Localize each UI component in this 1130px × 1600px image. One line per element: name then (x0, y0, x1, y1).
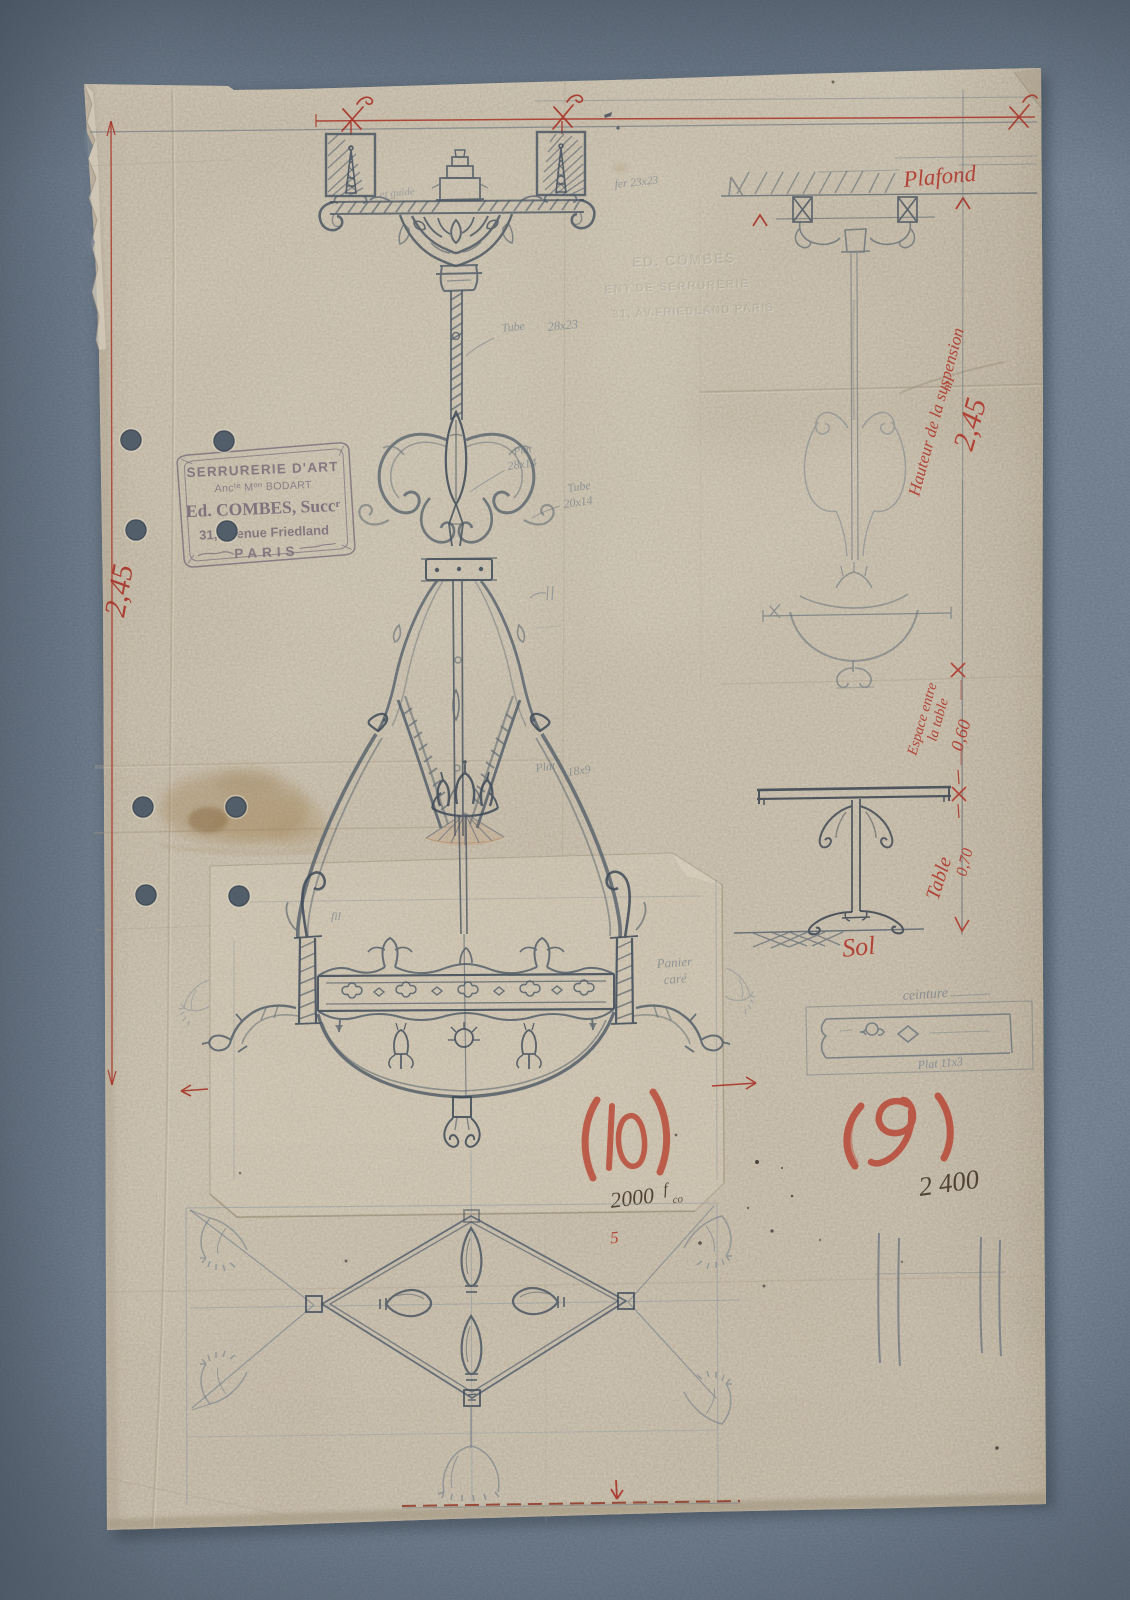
svg-text:Tube: Tube (501, 319, 526, 335)
svg-text:Panier: Panier (655, 953, 693, 971)
svg-text:PARIS: PARIS (234, 544, 300, 562)
svg-text:caré: caré (663, 970, 688, 987)
svg-text:fil: fil (331, 909, 342, 923)
svg-text:Plat: Plat (533, 758, 556, 775)
svg-text:Sol: Sol (841, 931, 877, 963)
svg-text:ceinture: ceinture (902, 986, 948, 1004)
svg-text:5: 5 (609, 1228, 619, 1248)
svg-text:2000: 2000 (609, 1183, 656, 1213)
svg-text:co: co (672, 1193, 684, 1206)
